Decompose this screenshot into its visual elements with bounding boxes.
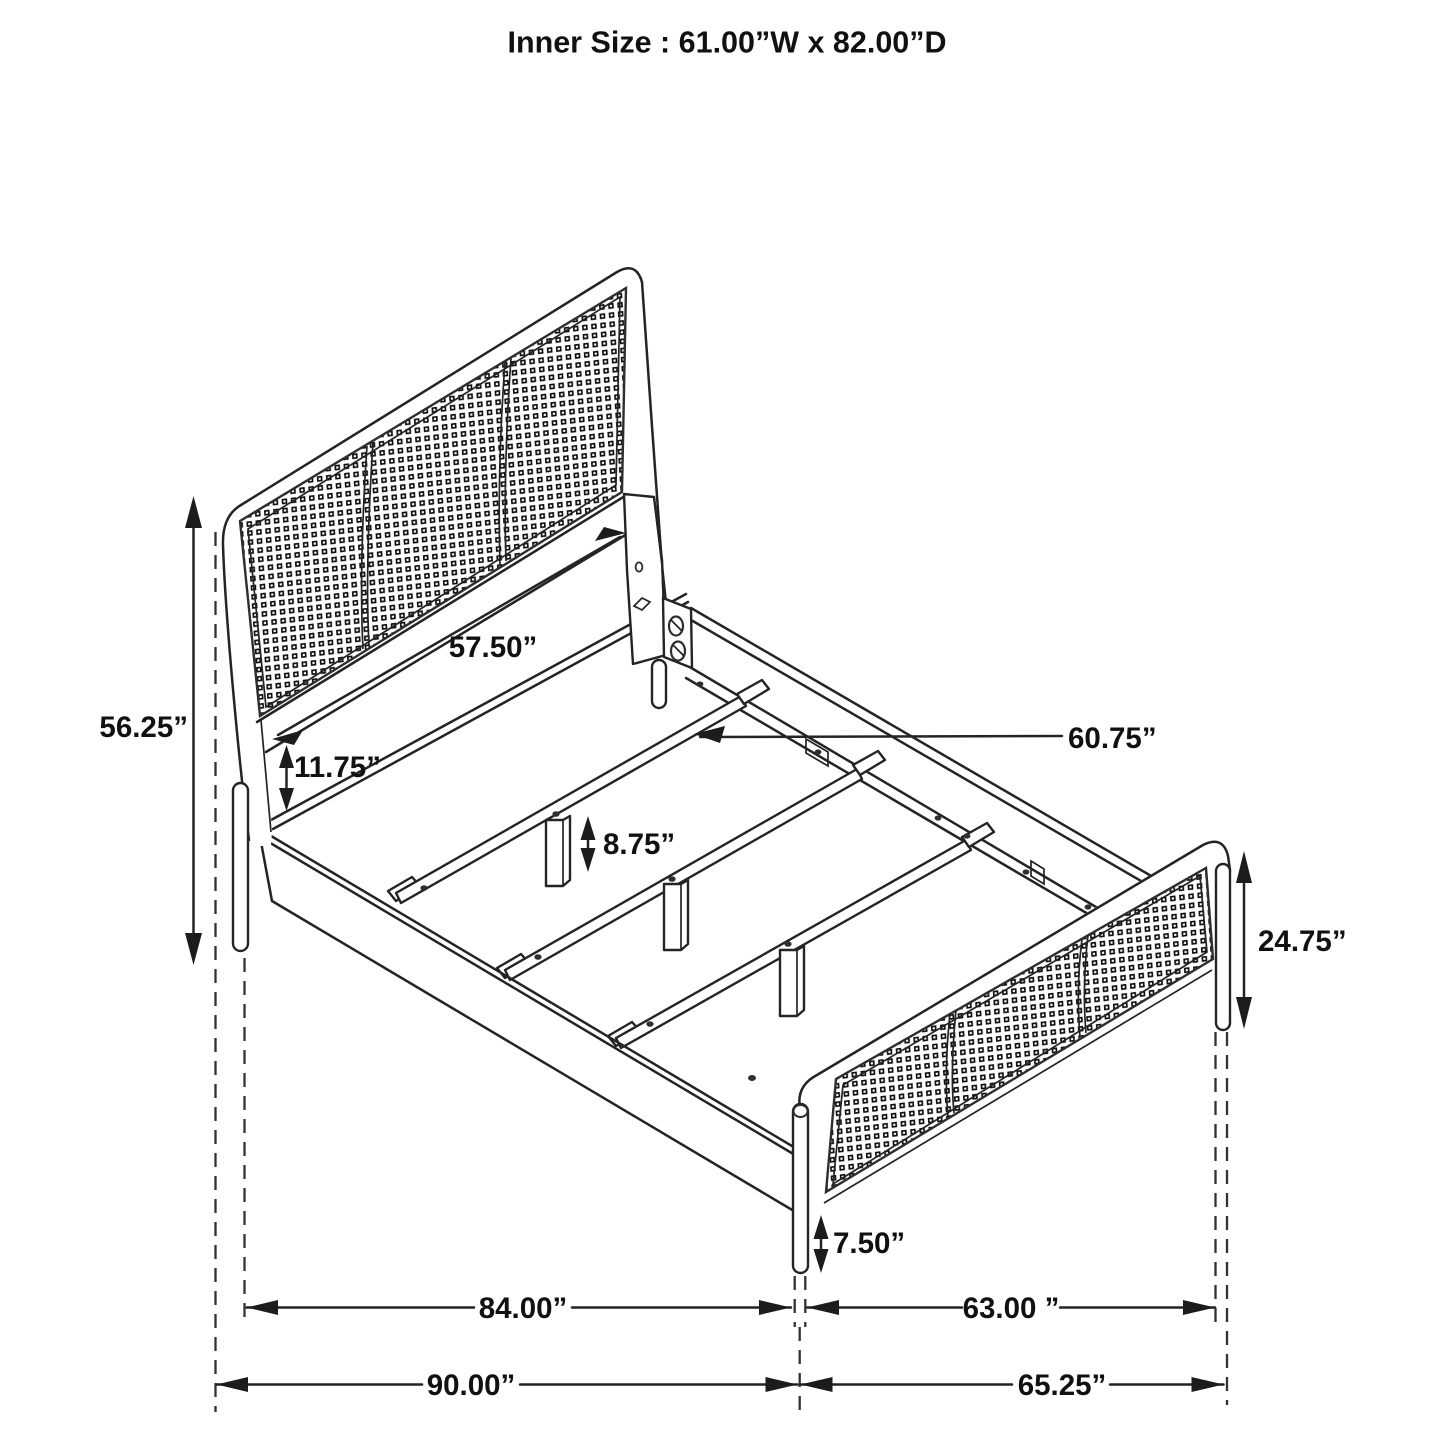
- svg-text:Inner Size : 61.00”W x 82.00”D: Inner Size : 61.00”W x 82.00”D: [507, 26, 946, 60]
- svg-text:60.75”: 60.75”: [1068, 722, 1157, 755]
- svg-text:63.00 ”: 63.00 ”: [963, 1292, 1060, 1325]
- svg-text:8.75”: 8.75”: [603, 828, 675, 861]
- svg-text:65.25”: 65.25”: [1018, 1369, 1107, 1402]
- svg-text:24.75”: 24.75”: [1258, 925, 1347, 958]
- svg-text:90.00”: 90.00”: [427, 1369, 516, 1402]
- svg-text:84.00”: 84.00”: [479, 1292, 568, 1325]
- svg-text:57.50”: 57.50”: [449, 631, 538, 664]
- svg-text:7.50”: 7.50”: [833, 1227, 905, 1260]
- svg-text:11.75”: 11.75”: [294, 751, 381, 784]
- svg-text:56.25”: 56.25”: [99, 711, 188, 744]
